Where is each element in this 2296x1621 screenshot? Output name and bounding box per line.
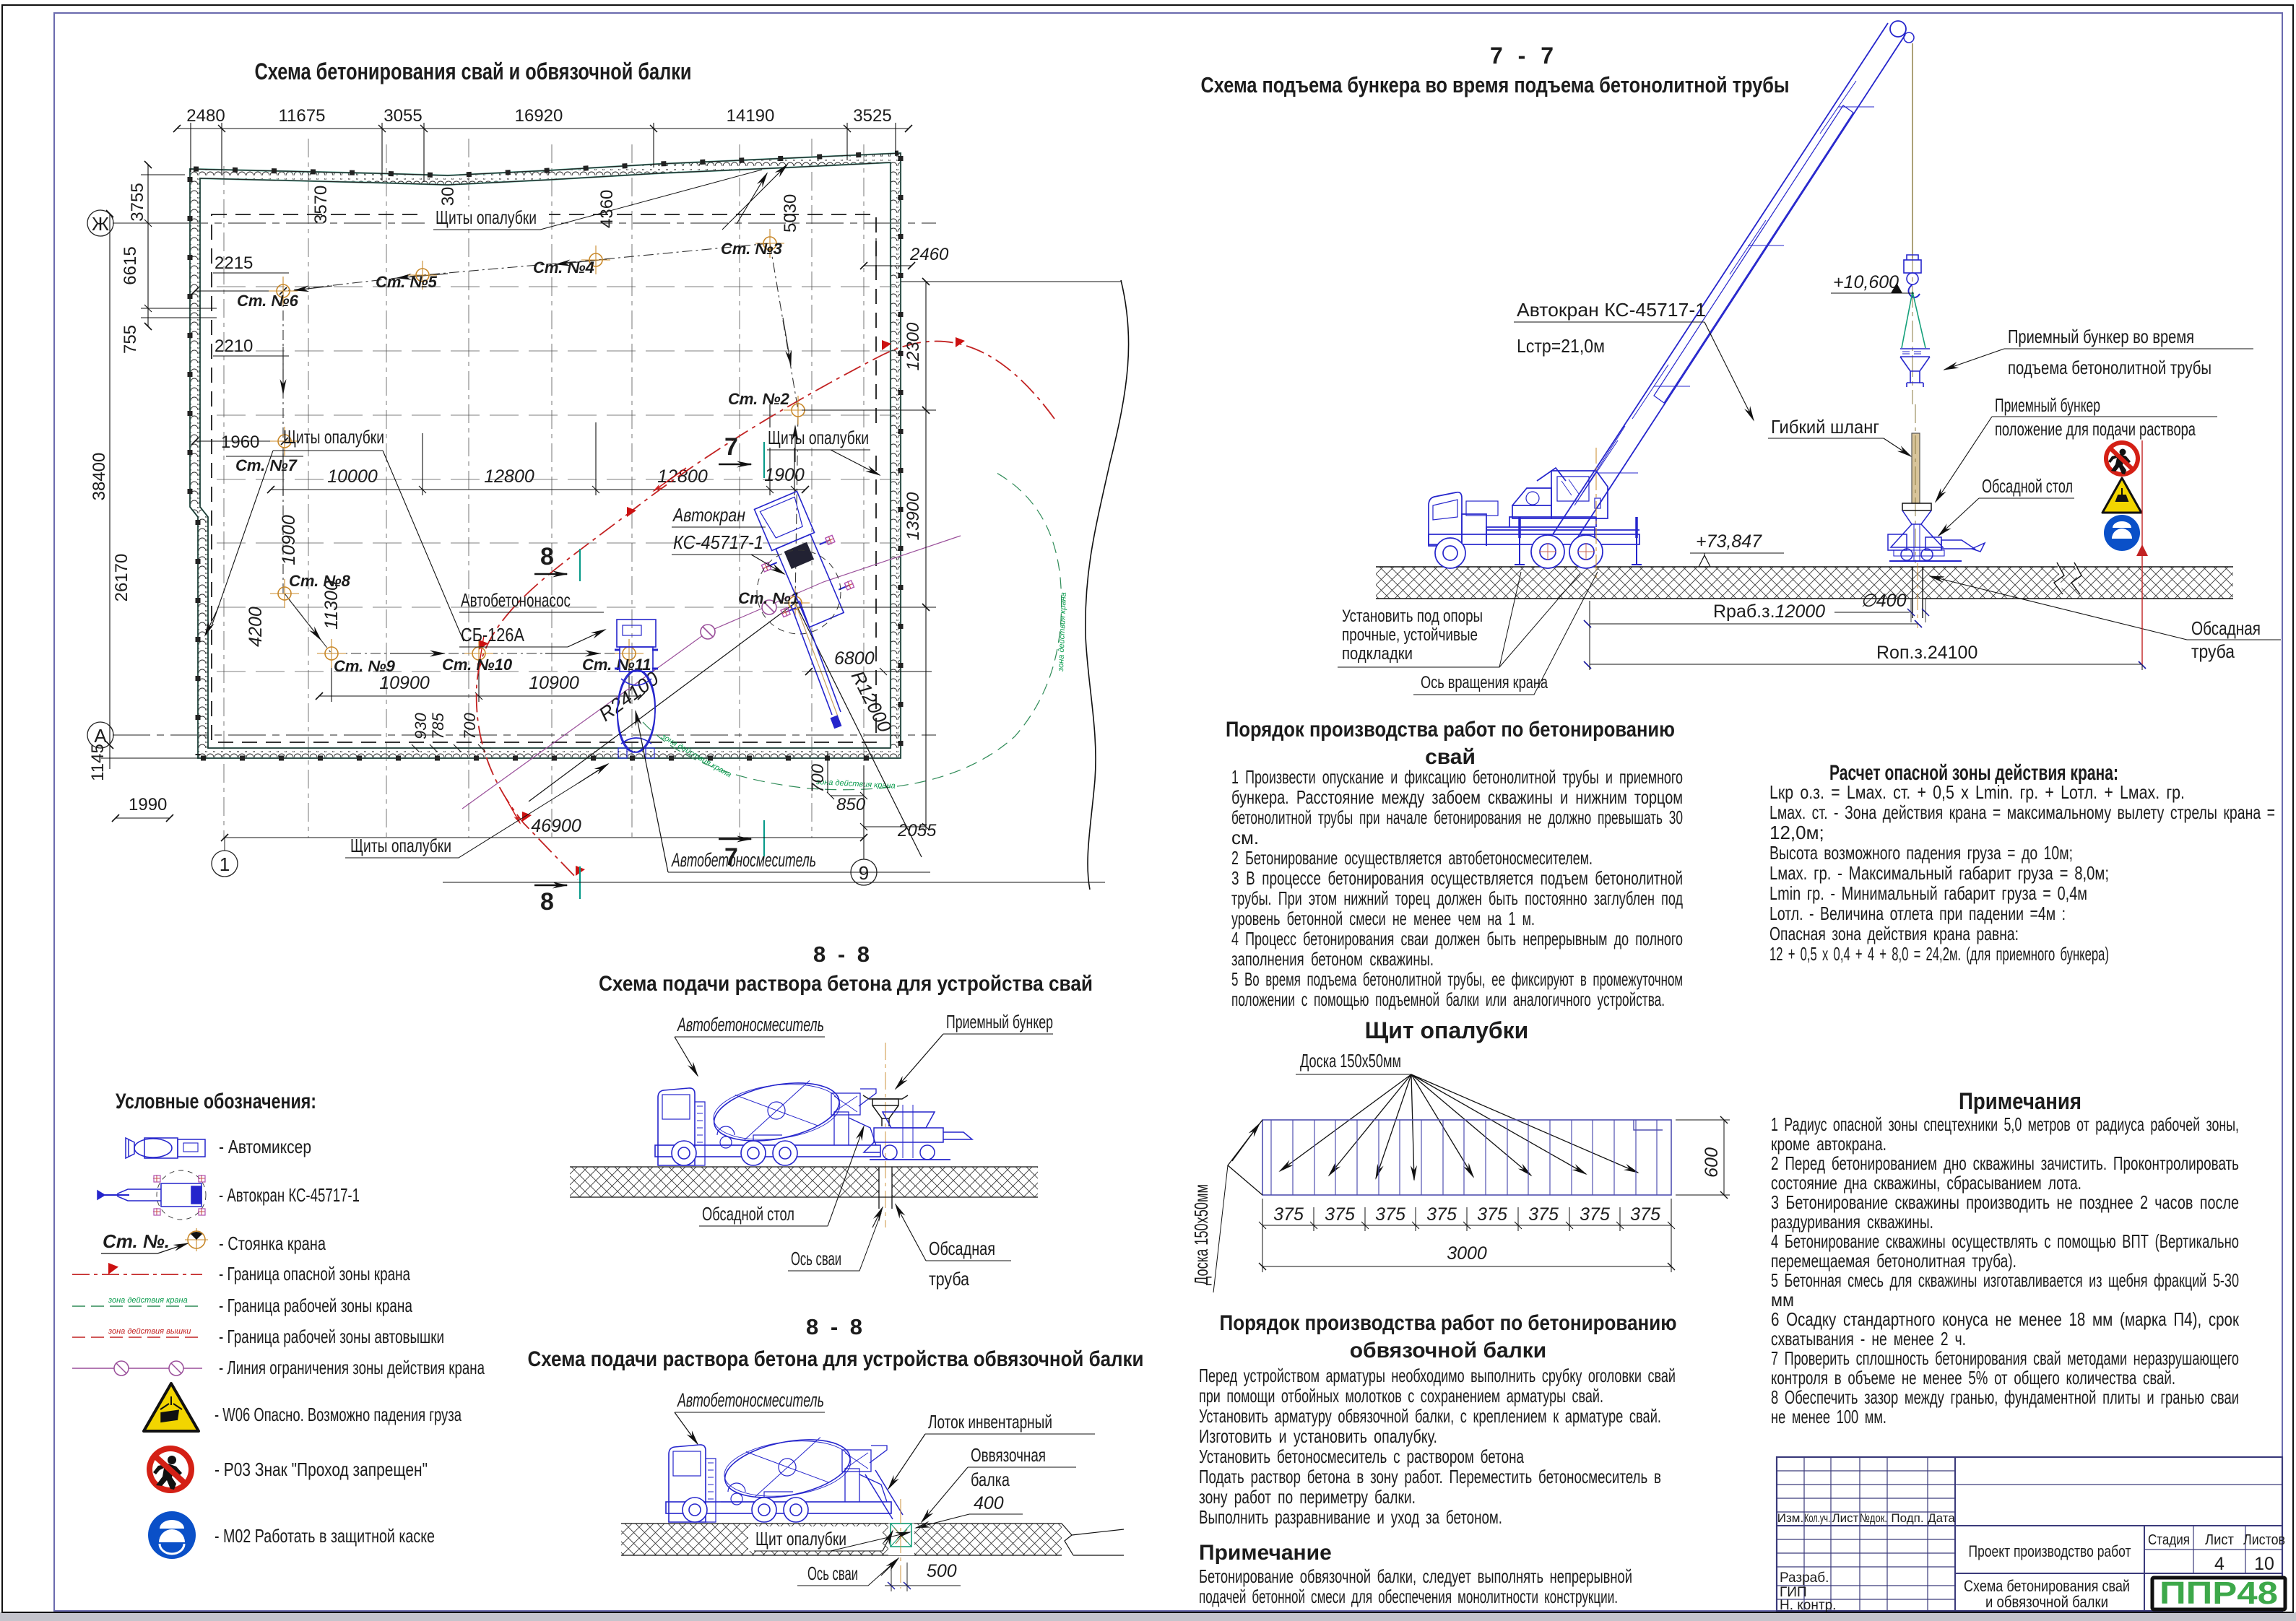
svg-text:14190: 14190 xyxy=(727,106,775,126)
svg-text:Lмах. гр. - Максимальный габар: Lмах. гр. - Максимальный габарит груза =… xyxy=(1769,862,2109,884)
svg-text:Ось вращения крана: Ось вращения крана xyxy=(1421,673,1548,692)
svg-text:4360: 4360 xyxy=(597,190,617,228)
svg-text:Ст. №2: Ст. №2 xyxy=(728,390,790,408)
svg-text:не менее 100 мм.: не менее 100 мм. xyxy=(1771,1406,1886,1427)
svg-text:Н. контр.: Н. контр. xyxy=(1780,1598,1836,1613)
svg-text:3570: 3570 xyxy=(311,186,331,224)
svg-text:труба: труба xyxy=(2191,640,2235,662)
svg-text:16920: 16920 xyxy=(515,106,563,126)
svg-text:4 Процесс бетонирования сваи: 4 Процесс бетонирования сваи должен быть… xyxy=(1231,928,1683,949)
svg-text:Lмах. ст. - Зона действия кран: Lмах. ст. - Зона действия крана = максим… xyxy=(1769,801,2275,823)
svg-text:контроля в объеме не менее 5%: контроля в объеме не менее 5% от общего … xyxy=(1771,1367,2175,1389)
svg-text:Перед устройством арматуры нео: Перед устройством арматуры необходимо вы… xyxy=(1199,1365,1676,1386)
svg-text:Ось сваи: Ось сваи xyxy=(807,1563,858,1584)
svg-text:Автобетононасос: Автобетононасос xyxy=(461,589,571,611)
svg-text:перемещаемая бетонолитная труб: перемещаемая бетонолитная труба). xyxy=(1771,1250,2016,1272)
svg-text:3 Бетонирование скважины про: 3 Бетонирование скважины производить не … xyxy=(1771,1191,2239,1213)
svg-text:3525: 3525 xyxy=(853,106,891,126)
svg-text:600: 600 xyxy=(1702,1147,1722,1178)
svg-text:4: 4 xyxy=(2214,1554,2224,1574)
svg-text:6 Осадку стандартного конуса: 6 Осадку стандартного конуса не менее 18… xyxy=(1771,1308,2239,1330)
svg-text:375: 375 xyxy=(1325,1204,1355,1225)
svg-text:3 В процессе бетонирования: 3 В процессе бетонирования осуществляетс… xyxy=(1231,867,1683,889)
svg-text:400: 400 xyxy=(974,1493,1004,1513)
svg-text:Установить бетоносмеситель с р: Установить бетоносмеситель с раствором б… xyxy=(1199,1446,1524,1467)
svg-text:Ст. №9: Ст. №9 xyxy=(334,657,396,675)
svg-text:мм: мм xyxy=(1771,1289,1794,1311)
svg-text:Лоток инвентарный: Лоток инвентарный xyxy=(928,1411,1052,1433)
svg-text:Lкр о.з. = Lмах. ст. + 0,5 х L: Lкр о.з. = Lмах. ст. + 0,5 х Lmin. гр. +… xyxy=(1769,781,2185,803)
svg-text:3755: 3755 xyxy=(128,183,147,221)
svg-text:КС-45717-1: КС-45717-1 xyxy=(673,531,763,553)
svg-text:7: 7 xyxy=(724,433,738,461)
svg-text:Схема подачи раствора бетона д: Схема подачи раствора бетона для устройс… xyxy=(599,972,1093,996)
svg-text:Щиты опалубки: Щиты опалубки xyxy=(768,427,869,448)
svg-text:3000: 3000 xyxy=(1447,1243,1487,1264)
svg-text:6800: 6800 xyxy=(834,648,875,669)
svg-text:Примечания: Примечания xyxy=(1959,1088,2081,1114)
svg-text:8: 8 xyxy=(540,888,554,916)
svg-text:Стадия: Стадия xyxy=(2148,1532,2190,1548)
svg-text:7 Проверить сплошность бетон: 7 Проверить сплошность бетонирования сва… xyxy=(1771,1347,2239,1369)
svg-text:Щиты опалубки: Щиты опалубки xyxy=(283,426,384,448)
svg-text:Схема подъема бункера во время: Схема подъема бункера во время подъема б… xyxy=(1201,72,1790,97)
svg-text:балка: балка xyxy=(971,1469,1010,1490)
svg-text:Условные обозначения:: Условные обозначения: xyxy=(116,1090,316,1113)
svg-text:375: 375 xyxy=(1273,1204,1304,1225)
svg-text:Высота возможного падения груз: Высота возможного падения груза = до 10м… xyxy=(1769,842,2073,864)
svg-text:Rраб.з.12000: Rраб.з.12000 xyxy=(1713,601,1825,622)
svg-text:Приемный бункер во время: Приемный бункер во время xyxy=(2008,326,2194,347)
svg-text:Автобетоносмеситель: Автобетоносмеситель xyxy=(677,1389,824,1411)
svg-text:и обвязочной балки: и обвязочной балки xyxy=(1985,1593,2108,1611)
svg-text:2055: 2055 xyxy=(897,821,937,840)
svg-text:Изм.: Изм. xyxy=(1777,1511,1803,1525)
svg-text:см.: см. xyxy=(1231,827,1259,848)
svg-text:Ст. №10: Ст. №10 xyxy=(442,656,513,674)
svg-text:785: 785 xyxy=(429,713,447,739)
svg-text:СБ-126А: СБ-126А xyxy=(461,624,525,646)
svg-text:Ст. №1: Ст. №1 xyxy=(738,589,800,607)
svg-text:подъема бетонолитной трубы: подъема бетонолитной трубы xyxy=(2008,357,2211,378)
svg-text:Обсадной стол: Обсадной стол xyxy=(1982,475,2073,497)
svg-text:- Автокран КС-45717-1: - Автокран КС-45717-1 xyxy=(219,1184,360,1206)
svg-text:Lотл. - Величина отлета при па: Lотл. - Величина отлета при падении =4м … xyxy=(1769,903,2066,924)
svg-text:Ст. №3: Ст. №3 xyxy=(721,240,782,258)
svg-text:46900: 46900 xyxy=(531,816,581,836)
svg-text:трубы. При этом нижний тор: трубы. При этом нижний торец должен быть… xyxy=(1231,887,1683,909)
svg-text:зона действия вышки: зона действия вышки xyxy=(108,1327,191,1336)
svg-text:10900: 10900 xyxy=(379,673,430,693)
svg-text:- Автомиксер: - Автомиксер xyxy=(219,1136,311,1157)
svg-text:9: 9 xyxy=(859,862,869,884)
svg-text:375: 375 xyxy=(1426,1204,1457,1225)
svg-text:Автобетоносмеситель: Автобетоносмеситель xyxy=(677,1014,824,1035)
svg-text:- Стоянка крана: - Стоянка крана xyxy=(219,1233,326,1254)
svg-text:12800: 12800 xyxy=(657,466,708,487)
svg-text:10000: 10000 xyxy=(327,466,378,487)
svg-text:А: А xyxy=(94,725,107,747)
svg-text:Бетонирование обвязочной бал: Бетонирование обвязочной балки, следует … xyxy=(1199,1565,1632,1587)
svg-text:обвязочной балки: обвязочной балки xyxy=(1350,1339,1547,1363)
svg-text:Обсадная: Обсадная xyxy=(2191,617,2261,639)
svg-text:Подп.: Подп. xyxy=(1891,1511,1923,1525)
svg-text:Выполнить разравнивание и уход: Выполнить разравнивание и уход за бетоно… xyxy=(1199,1506,1502,1528)
svg-text:Приемный бункер: Приемный бункер xyxy=(946,1011,1053,1033)
svg-text:Доска 150х50мм: Доска 150х50мм xyxy=(1300,1050,1401,1072)
svg-text:Щиты опалубки: Щиты опалубки xyxy=(436,207,537,228)
svg-text:Доска 150х50мм: Доска 150х50мм xyxy=(1190,1184,1212,1285)
svg-text:Щит опалубки: Щит опалубки xyxy=(1365,1017,1529,1043)
svg-text:- М02 Работать в защитной каск: - М02 Работать в защитной каске xyxy=(215,1525,435,1547)
svg-text:прочные, устойчивые: прочные, устойчивые xyxy=(1342,625,1478,645)
svg-text:Обсадная: Обсадная xyxy=(929,1238,995,1259)
svg-text:38400: 38400 xyxy=(90,453,109,501)
svg-text:10900: 10900 xyxy=(279,515,299,565)
svg-text:Листов: Листов xyxy=(2243,1532,2285,1548)
svg-text:12 + 0,5 х 0,4 + 4 + 8,0 = 24,: 12 + 0,5 х 0,4 + 4 + 8,0 = 24,2м. (для п… xyxy=(1769,943,2109,965)
svg-text:11675: 11675 xyxy=(279,106,326,126)
svg-text:Обсадной стол: Обсадной стол xyxy=(702,1203,794,1225)
svg-text:930: 930 xyxy=(412,713,430,739)
svg-text:+10,600: +10,600 xyxy=(1833,272,1899,292)
svg-text:10900: 10900 xyxy=(529,673,579,693)
svg-text:подачей бетонной смеси для обе: подачей бетонной смеси для обеспечения м… xyxy=(1199,1586,1618,1607)
svg-text:Ст. №6: Ст. №6 xyxy=(237,292,299,310)
svg-text:Ст. №4: Ст. №4 xyxy=(533,258,594,277)
svg-text:2 Перед бетонированием дно: 2 Перед бетонированием дно скважины зачи… xyxy=(1771,1152,2239,1174)
svg-text:700: 700 xyxy=(808,763,828,793)
svg-text:850: 850 xyxy=(836,795,866,814)
svg-text:Схема подачи раствора бетона д: Схема подачи раствора бетона для устройс… xyxy=(528,1347,1144,1371)
svg-text:положение для подачи раствора: положение для подачи раствора xyxy=(1995,418,2196,440)
svg-text:Автобетоносмеситель: Автобетоносмеситель xyxy=(671,849,816,871)
svg-text:Установить арматуру обвязочной: Установить арматуру обвязочной балки, с … xyxy=(1199,1405,1661,1427)
svg-text:Примечание: Примечание xyxy=(1199,1541,1332,1565)
svg-text:13900: 13900 xyxy=(904,492,923,540)
svg-text:2460: 2460 xyxy=(909,245,949,264)
svg-text:755: 755 xyxy=(121,325,140,354)
svg-text:Установить под опоры: Установить под опоры xyxy=(1342,607,1483,626)
svg-text:5030: 5030 xyxy=(781,194,800,232)
svg-text:3055: 3055 xyxy=(384,106,422,126)
svg-text:заполнения бетоном скважины.: заполнения бетоном скважины. xyxy=(1231,948,1434,970)
svg-text:2 Бетонирование осуществляется: 2 Бетонирование осуществляется автобетон… xyxy=(1231,847,1593,869)
svg-text:10: 10 xyxy=(2254,1554,2274,1574)
svg-text:Изготовить и установить опалуб: Изготовить и установить опалубку. xyxy=(1199,1425,1437,1447)
svg-text:уровень бетонной смеси не мене: уровень бетонной смеси не менее чем на 1… xyxy=(1231,908,1535,929)
svg-text:Схема бетонирования свай и обв: Схема бетонирования свай и обвязочной ба… xyxy=(255,58,692,84)
svg-text:труба: труба xyxy=(929,1268,969,1290)
svg-text:Лист: Лист xyxy=(2205,1532,2234,1548)
svg-text:- Линия ограничения зоны дейст: - Линия ограничения зоны действия крана xyxy=(219,1357,485,1378)
svg-text:Проект производство работ: Проект производство работ xyxy=(1969,1542,2131,1560)
svg-text:2210: 2210 xyxy=(215,336,253,356)
svg-text:Оввязочная: Оввязочная xyxy=(971,1444,1046,1466)
svg-text:7: 7 xyxy=(724,843,738,871)
svg-text:2215: 2215 xyxy=(215,253,253,273)
svg-text:положении с помощью подъемной: положении с помощью подъемной балки или … xyxy=(1231,988,1665,1010)
svg-text:6615: 6615 xyxy=(121,246,140,284)
svg-text:Гибкий шланг: Гибкий шланг xyxy=(1771,416,1879,438)
svg-text:1: 1 xyxy=(220,853,230,875)
svg-text:Лист: Лист xyxy=(1832,1511,1859,1525)
svg-text:1 Радиус опасной зоны спецтехн: 1 Радиус опасной зоны спецтехники 5,0 ме… xyxy=(1771,1113,2239,1135)
svg-text:375: 375 xyxy=(1528,1204,1559,1225)
svg-text:375: 375 xyxy=(1375,1204,1405,1225)
svg-text:Кол.уч.: Кол.уч. xyxy=(1804,1511,1830,1525)
svg-text:4200: 4200 xyxy=(246,607,266,647)
svg-text:Порядок производства работ по: Порядок производства работ по бетонирова… xyxy=(1226,718,1675,742)
svg-text:26170: 26170 xyxy=(112,554,131,602)
svg-text:Lmin гр. - Минимальный габарит: Lmin гр. - Минимальный габарит груза = 0… xyxy=(1769,882,2087,904)
svg-text:Ж: Ж xyxy=(92,213,109,235)
svg-text:зону работ по периметру балки.: зону работ по периметру балки. xyxy=(1199,1486,1416,1508)
svg-text:Rоп.з.24100: Rоп.з.24100 xyxy=(1876,643,1977,663)
svg-text:375: 375 xyxy=(1580,1204,1610,1225)
svg-text:12800: 12800 xyxy=(484,466,534,487)
svg-text:8 - 8: 8 - 8 xyxy=(806,1314,865,1339)
svg-text:375: 375 xyxy=(1477,1204,1507,1225)
svg-text:№док.: №док. xyxy=(1860,1511,1887,1525)
svg-text:состояние дна скважины, сбрасы: состояние дна скважины, сбрасыванием лот… xyxy=(1771,1172,2081,1194)
svg-text:Ст. №7: Ст. №7 xyxy=(235,456,298,474)
svg-text:Разраб.: Разраб. xyxy=(1780,1570,1829,1586)
svg-text:+73,847: +73,847 xyxy=(1696,531,1762,552)
svg-text:1990: 1990 xyxy=(129,795,167,814)
svg-text:схватывания - не менее 2 ч.: схватывания - не менее 2 ч. xyxy=(1771,1328,1966,1350)
svg-text:5 Бетонная смесь для скважи: 5 Бетонная смесь для скважины изготавлив… xyxy=(1771,1269,2239,1291)
svg-text:при помощи отбойных молотков с: при помощи отбойных молотков с сохранени… xyxy=(1199,1385,1603,1407)
svg-text:Приемный бункер: Приемный бункер xyxy=(1995,394,2100,416)
svg-text:1960: 1960 xyxy=(221,433,259,452)
svg-text:Автокран КС-45717-1: Автокран КС-45717-1 xyxy=(1517,299,1706,321)
svg-text:раздуривания скважины.: раздуривания скважины. xyxy=(1771,1211,1933,1233)
svg-text:∅400: ∅400 xyxy=(1860,591,1907,611)
svg-text:Порядок производства работ по: Порядок производства работ по бетонирова… xyxy=(1220,1311,1677,1335)
svg-text:Lстр=21,0м: Lстр=21,0м xyxy=(1517,335,1605,357)
svg-text:1900: 1900 xyxy=(764,465,805,485)
svg-text:Автокран: Автокран xyxy=(672,504,745,526)
svg-text:4 Бетонирование скважины осу: 4 Бетонирование скважины осуществлять с … xyxy=(1771,1230,2239,1252)
svg-text:375: 375 xyxy=(1630,1204,1660,1225)
svg-text:Щит опалубки: Щит опалубки xyxy=(755,1528,846,1550)
svg-text:бетонолитной трубы при начале: бетонолитной трубы при начале бетонирова… xyxy=(1231,807,1683,828)
svg-text:7 - 7: 7 - 7 xyxy=(1490,43,1558,69)
svg-text:зона действия крана: зона действия крана xyxy=(108,1296,188,1305)
svg-text:500: 500 xyxy=(927,1561,957,1581)
svg-text:Ст. №8: Ст. №8 xyxy=(289,572,351,590)
svg-text:Дата: Дата xyxy=(1928,1511,1955,1525)
svg-text:8 Обеспечить зазор между гр: 8 Обеспечить зазор между гранью, фундаме… xyxy=(1771,1386,2239,1408)
svg-text:1 Произвести опускание и фикса: 1 Произвести опускание и фиксацию бетоно… xyxy=(1231,766,1683,788)
svg-text:8 - 8: 8 - 8 xyxy=(813,942,872,967)
svg-text:5 Во время подъема бетонолитно: 5 Во время подъема бетонолитной трубы, е… xyxy=(1231,968,1683,990)
svg-text:Подать раствор бетона в зону р: Подать раствор бетона в зону работ. Пере… xyxy=(1199,1466,1661,1487)
svg-text:бункера. Расстояние между з: бункера. Расстояние между забоем скважин… xyxy=(1231,786,1683,808)
svg-text:Ст. №5: Ст. №5 xyxy=(376,273,438,291)
svg-text:Ст. №.: Ст. №. xyxy=(103,1230,170,1252)
svg-text:- Граница рабочей зоны автовыш: - Граница рабочей зоны автовышки xyxy=(219,1326,444,1347)
svg-text:- W06 Опасно. Возможно падения: - W06 Опасно. Возможно падения груза xyxy=(215,1404,462,1425)
svg-text:2480: 2480 xyxy=(186,106,225,126)
svg-text:кроме автокрана.: кроме автокрана. xyxy=(1771,1133,1886,1155)
svg-text:- Граница опасной зоны крана: - Граница опасной зоны крана xyxy=(219,1263,410,1285)
svg-text:подкладки: подкладки xyxy=(1342,644,1413,664)
svg-text:1145: 1145 xyxy=(88,744,108,781)
svg-text:8: 8 xyxy=(540,543,554,570)
svg-text:- Р03 Знак "Проход запрещен": - Р03 Знак "Проход запрещен" xyxy=(215,1459,428,1480)
svg-text:Ось сваи: Ось сваи xyxy=(791,1248,841,1269)
svg-text:ППР48: ППР48 xyxy=(2159,1576,2278,1611)
svg-text:Опасная зона действия крана ра: Опасная зона действия крана равна: xyxy=(1769,923,2019,944)
svg-text:12,0м;: 12,0м; xyxy=(1769,822,1824,843)
svg-text:- Граница рабочей зоны крана: - Граница рабочей зоны крана xyxy=(219,1295,412,1316)
svg-text:12300: 12300 xyxy=(904,322,923,370)
svg-text:700: 700 xyxy=(461,713,479,739)
